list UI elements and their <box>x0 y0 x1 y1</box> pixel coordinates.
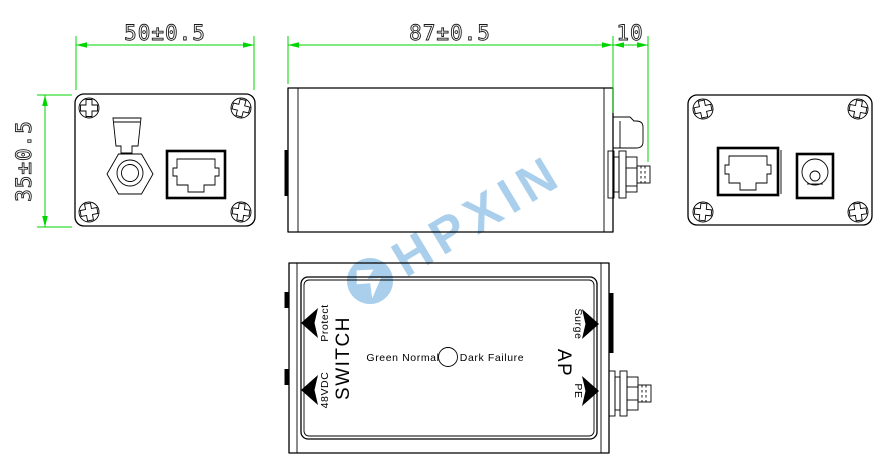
led-dark-label: Dark Failure <box>460 352 524 364</box>
led-indicator-icon <box>439 348 458 367</box>
corner-screw-icon <box>848 202 868 222</box>
mount-slot <box>610 293 614 353</box>
watermark-text: HPXIN <box>382 143 572 288</box>
ap-label: AP <box>553 349 574 377</box>
dimension-text-front-width: 50±0.5 <box>124 21 206 45</box>
dc-jack-icon <box>797 154 833 198</box>
switch-label: SWITCH <box>333 316 354 400</box>
dimension-text-front-height: 35±0.5 <box>12 120 36 202</box>
dimension-text-body-length: 87±0.5 <box>409 21 491 45</box>
dimension-text-connector-length: 10 <box>616 21 643 45</box>
coax-connector-icon <box>609 371 651 416</box>
dimension-front-width: 50±0.5 <box>76 21 254 90</box>
coax-connector-icon <box>608 151 650 198</box>
mount-slot <box>285 150 289 196</box>
corner-screw-icon <box>693 99 713 119</box>
surge-label: Surge <box>572 308 584 339</box>
corner-screw-icon <box>231 202 251 222</box>
corner-screw-icon <box>693 202 713 222</box>
corner-screw-icon <box>79 98 99 118</box>
corner-screw-icon <box>848 99 868 119</box>
protect-label: Protect <box>319 304 331 341</box>
dimension-body-length: 87±0.5 <box>288 21 613 113</box>
corner-screw-icon <box>231 98 252 119</box>
dimension-front-height: 35±0.5 <box>12 95 72 227</box>
led-green-label: Green Normal <box>366 352 439 364</box>
power-label: 48VDC <box>319 372 331 409</box>
technical-drawing-canvas: HPXIN <box>0 0 884 464</box>
rj45-port-icon <box>718 148 781 195</box>
lightning-logo-icon <box>338 249 401 312</box>
top-view: Protect 48VDC SWITCH Green Normal Dark F… <box>285 263 652 453</box>
rj45-housing-side <box>613 117 643 148</box>
mount-slot <box>285 369 289 385</box>
back-view <box>688 95 872 225</box>
pe-label: PE <box>572 383 584 398</box>
rj45-port-icon <box>167 151 225 198</box>
corner-screw-icon <box>79 202 99 222</box>
watermark: HPXIN <box>335 143 572 316</box>
coax-connector-icon <box>107 118 153 194</box>
drawing-svg: HPXIN <box>0 0 884 464</box>
mount-slot <box>285 292 289 308</box>
front-view <box>75 94 255 226</box>
